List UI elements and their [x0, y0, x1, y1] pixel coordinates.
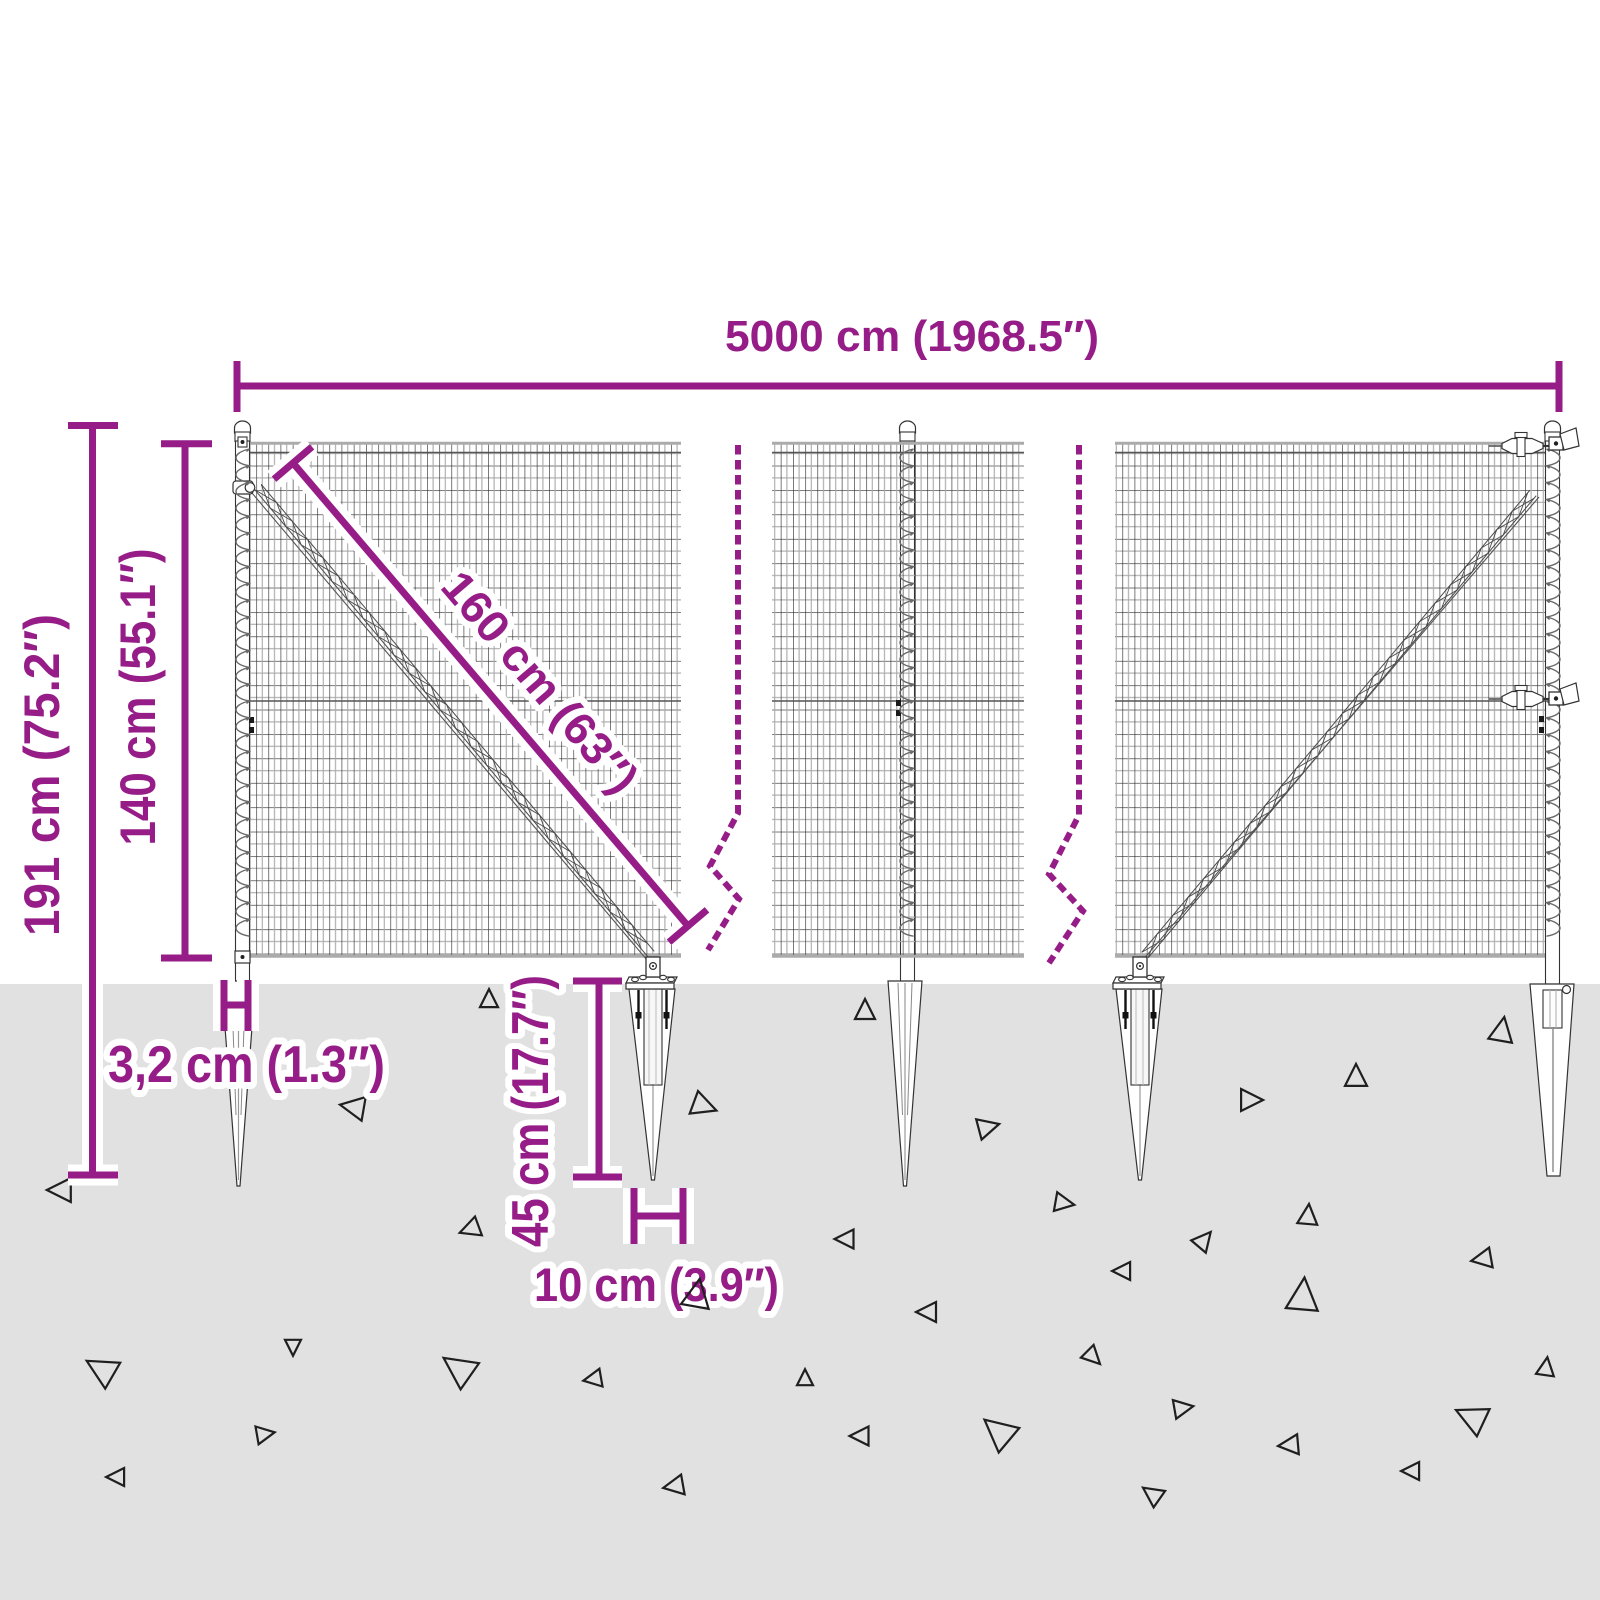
svg-text:10 cm (3.9″): 10 cm (3.9″): [534, 1258, 779, 1311]
svg-text:5000 cm (1968.5″): 5000 cm (1968.5″): [725, 312, 1099, 361]
svg-text:191 cm (75.2″): 191 cm (75.2″): [14, 614, 70, 936]
svg-text:45 cm (17.7″): 45 cm (17.7″): [502, 975, 560, 1247]
svg-text:3,2 cm (1.3″): 3,2 cm (1.3″): [108, 1036, 385, 1094]
svg-text:140 cm (55.1″): 140 cm (55.1″): [110, 549, 166, 846]
